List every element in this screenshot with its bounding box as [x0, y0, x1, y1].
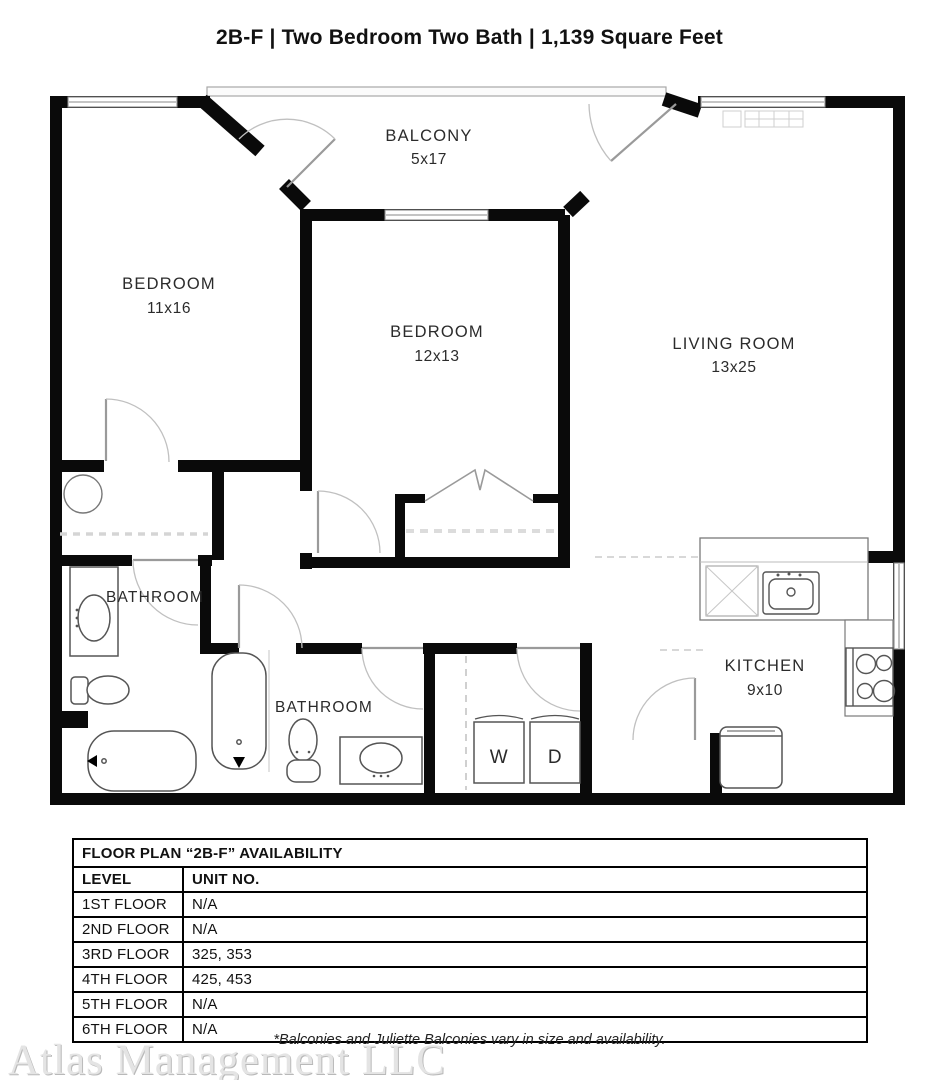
floor-plan-sheet: 2B-F | Two Bedroom Two Bath | 1,139 Squa…	[0, 0, 939, 1080]
bedroom1-label: BEDROOM	[122, 275, 216, 293]
toilet-base-icon	[287, 760, 320, 782]
units-cell: N/A	[183, 992, 867, 1017]
level-cell: 3RD FLOOR	[73, 942, 183, 967]
bathtub-icon	[212, 653, 266, 769]
column-header-unit-no: UNIT NO.	[183, 867, 867, 892]
sink-icon	[360, 743, 402, 773]
bathroom1-label: BATHROOM	[106, 589, 204, 606]
availability-title: FLOOR PLAN “2B-F” AVAILABILITY	[73, 839, 867, 867]
table-row: 2ND FLOOR N/A	[73, 917, 867, 942]
toilet-bowl-icon	[87, 676, 129, 704]
table-row: 3RD FLOOR 325, 353	[73, 942, 867, 967]
bedroom1-dims: 11x16	[147, 300, 191, 317]
hvac-unit-icon	[723, 111, 803, 127]
floor-plan-drawing: BALCONY 5x17 BEDROOM 11x16 BEDROOM 12x13…	[0, 0, 939, 830]
table-row: 5TH FLOOR N/A	[73, 992, 867, 1017]
dryer-label: D	[548, 747, 562, 768]
balcony-disclaimer: *Balconies and Juliette Balconies vary i…	[0, 1032, 939, 1048]
kitchen-dims: 9x10	[747, 682, 783, 699]
balcony-label: BALCONY	[385, 127, 472, 145]
stove-icon	[846, 648, 895, 706]
washer-label: W	[490, 747, 508, 768]
bathroom2-label: BATHROOM	[275, 699, 373, 716]
kitchen-sink-icon	[763, 572, 819, 614]
units-cell: 325, 353	[183, 942, 867, 967]
balcony-railing	[207, 87, 666, 96]
kitchen-label: KITCHEN	[725, 657, 806, 675]
bathroom2-fixtures	[212, 650, 422, 784]
availability-table: FLOOR PLAN “2B-F” AVAILABILITY LEVEL UNI…	[72, 838, 868, 1043]
bedroom2-dims: 12x13	[414, 348, 459, 365]
living-room-label: LIVING ROOM	[672, 335, 795, 353]
refrigerator-icon	[720, 727, 782, 788]
level-cell: 2ND FLOOR	[73, 917, 183, 942]
units-cell: N/A	[183, 917, 867, 942]
balcony-dims: 5x17	[411, 151, 447, 168]
door-icons	[106, 104, 695, 740]
walk-in-closet-icons	[60, 475, 208, 534]
level-cell: 4TH FLOOR	[73, 967, 183, 992]
bedroom2-label: BEDROOM	[390, 323, 484, 341]
living-room-dims: 13x25	[711, 359, 756, 376]
toilet-tank-icon	[71, 677, 88, 704]
column-header-level: LEVEL	[73, 867, 183, 892]
table-row: 1ST FLOOR N/A	[73, 892, 867, 917]
table-row: 4TH FLOOR 425, 453	[73, 967, 867, 992]
level-cell: 5TH FLOOR	[73, 992, 183, 1017]
toilet-bowl-icon	[289, 719, 317, 761]
level-cell: 1ST FLOOR	[73, 892, 183, 917]
units-cell: N/A	[183, 892, 867, 917]
units-cell: 425, 453	[183, 967, 867, 992]
